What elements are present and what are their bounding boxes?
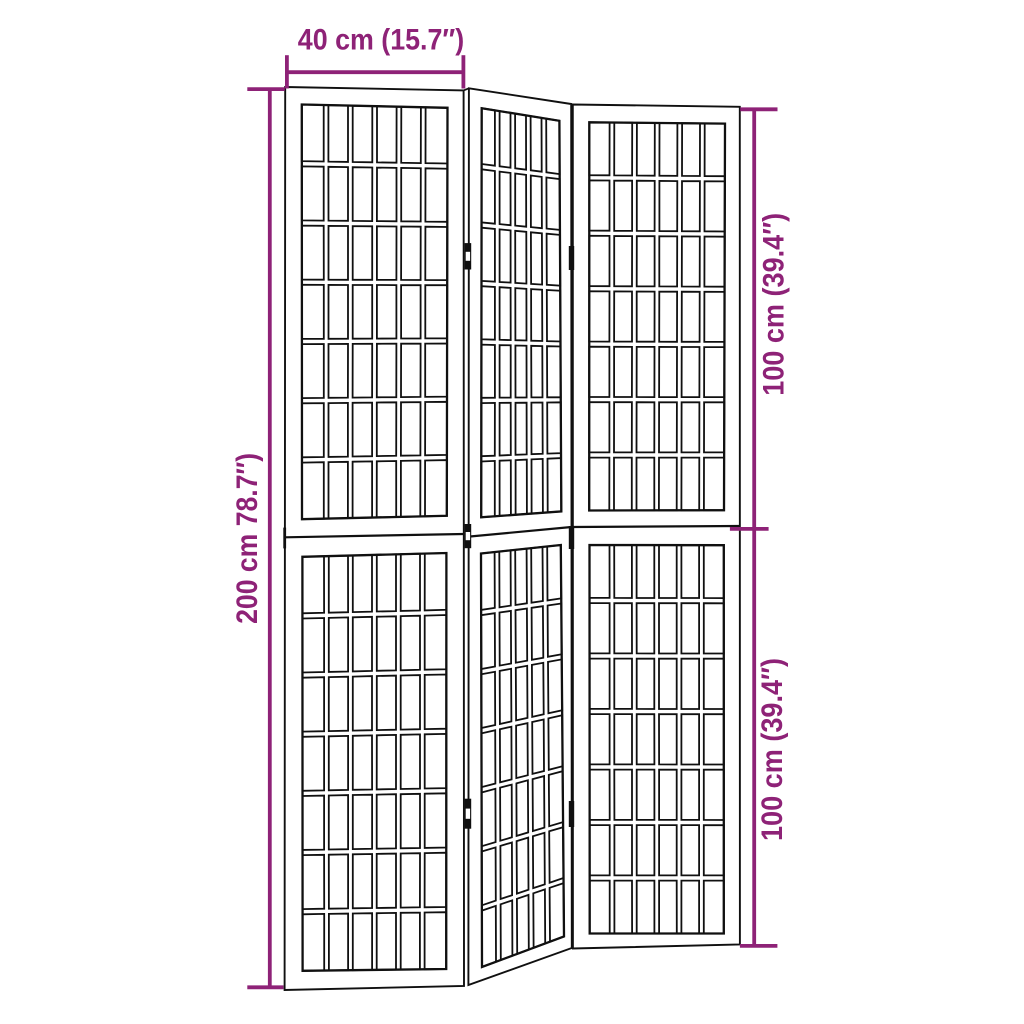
svg-text:200 cm 78.7″): 200 cm 78.7″) — [231, 453, 264, 624]
svg-text:100 cm (39.4″): 100 cm (39.4″) — [756, 658, 789, 841]
svg-text:40 cm (15.7″): 40 cm (15.7″) — [298, 24, 464, 57]
svg-text:100 cm (39.4″): 100 cm (39.4″) — [758, 213, 791, 396]
